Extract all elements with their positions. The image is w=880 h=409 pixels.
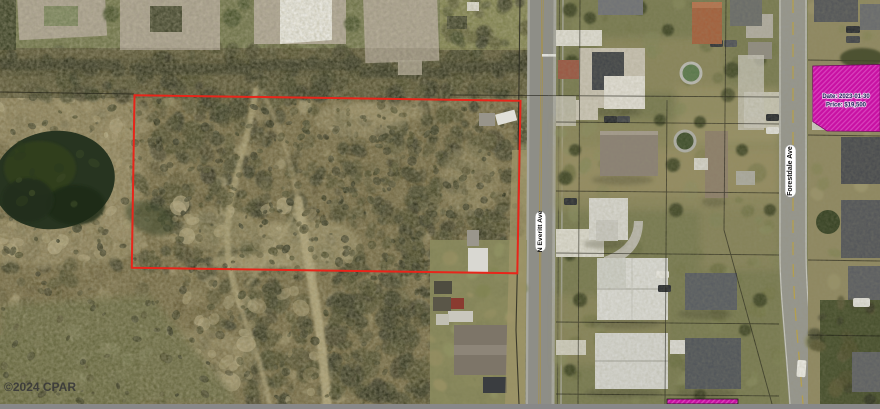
svg-text:Forestdale Ave: Forestdale Ave bbox=[787, 146, 794, 196]
svg-text:Date: 2023-01-30: Date: 2023-01-30 bbox=[822, 94, 870, 100]
svg-text:Price: $19,500: Price: $19,500 bbox=[826, 103, 867, 109]
svg-text:N Everitt Ave: N Everitt Ave bbox=[537, 210, 544, 252]
svg-text:©2024 CPAR: ©2024 CPAR bbox=[4, 380, 76, 394]
